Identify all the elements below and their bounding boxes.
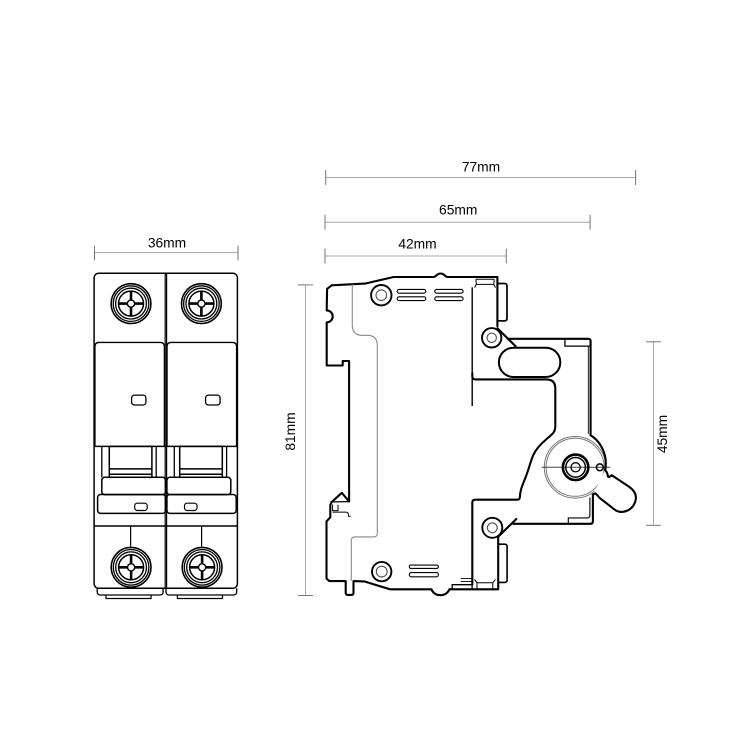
svg-text:77mm: 77mm — [462, 160, 500, 175]
svg-text:36mm: 36mm — [148, 236, 186, 251]
svg-text:42mm: 42mm — [398, 236, 436, 251]
svg-text:65mm: 65mm — [439, 202, 477, 217]
svg-text:45mm: 45mm — [655, 415, 670, 453]
svg-text:81mm: 81mm — [283, 412, 298, 450]
